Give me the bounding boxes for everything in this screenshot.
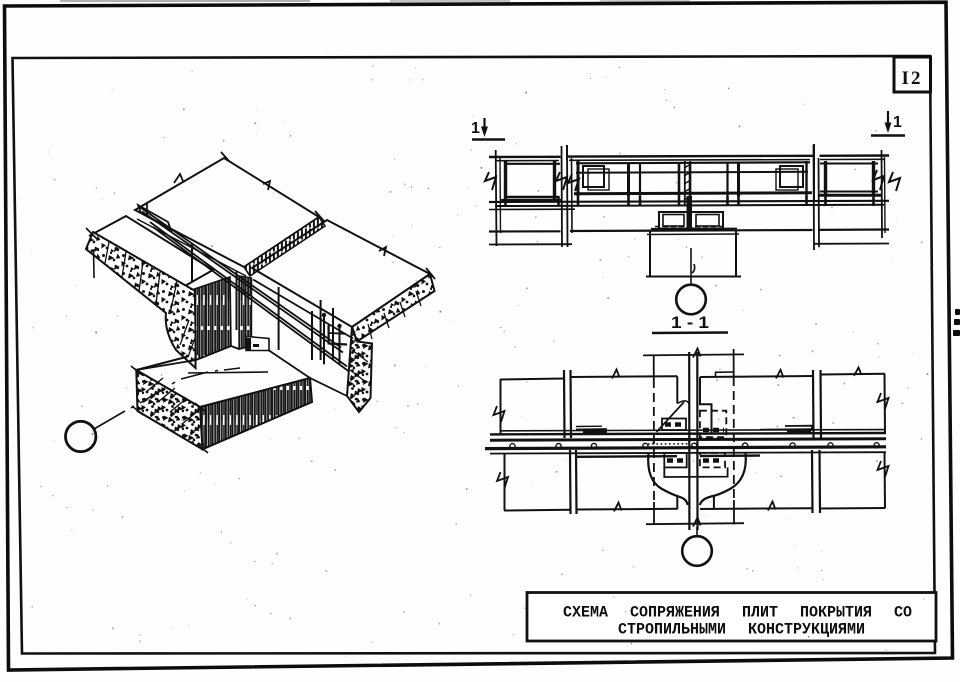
svg-text:СХЕМА СОПРЯЖЕНИЯ ПЛИТ ПОКРЫТИЯ: СХЕМА СОПРЯЖЕНИЯ ПЛИТ ПОКРЫТИЯ СО [563,604,912,622]
svg-text:СТРОПИЛЬНЫМИ КОНСТРУКЦИЯМИ: СТРОПИЛЬНЫМИ КОНСТРУКЦИЯМИ [618,621,865,639]
svg-text:1: 1 [471,120,480,137]
svg-text:1: 1 [893,114,902,131]
svg-text:I2: I2 [902,68,923,89]
svg-text:1 - 1: 1 - 1 [671,313,709,332]
